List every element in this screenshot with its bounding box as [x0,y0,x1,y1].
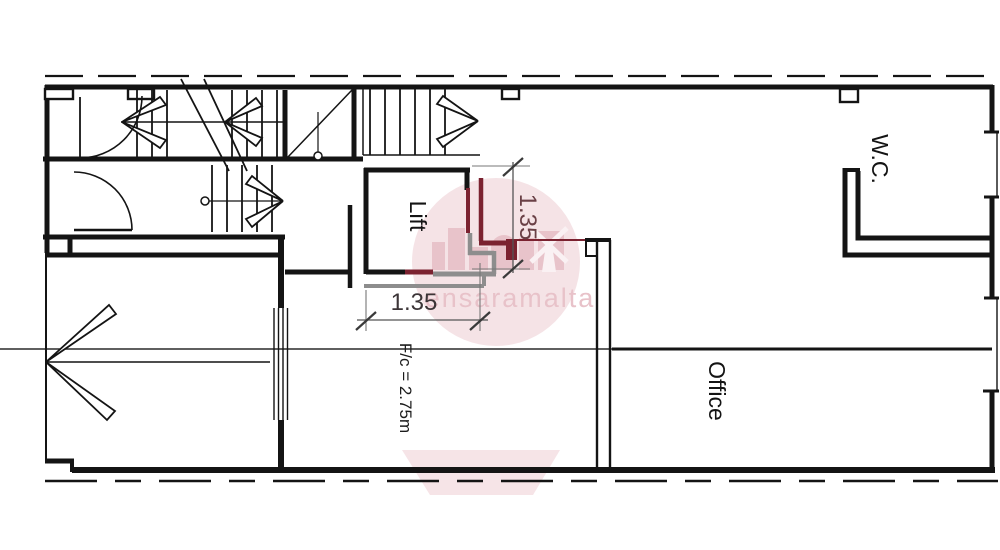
front-room [45,237,288,472]
wc-label: W.C. [867,134,893,184]
floor-plan-canvas: ensaramalta [0,0,1000,550]
ceiling-height-label: F/c = 2.75m [396,343,415,433]
office-room [585,240,992,470]
stair-treads-winders [212,165,272,232]
pilaster-topleft [45,89,73,99]
pilaster-1 [128,89,154,99]
newel-post-lower [201,197,209,205]
landing-diagonal [287,90,352,158]
dim-h-value: 1.35 [391,289,438,316]
lift-label: Lift [405,201,431,232]
wc-room [843,168,992,255]
stair-arrow-right-flight [437,96,478,147]
middle-room-walls [285,205,352,288]
door-swing-lower [74,172,132,230]
stair-treads-right-flight [370,89,445,155]
office-label: Office [704,361,730,421]
floor-plan-drawing: ensaramalta [0,0,1000,550]
dim-v-value: 1.35 [514,194,541,241]
aperture-lines [274,308,288,420]
red-jamb-block [506,239,517,260]
office-wall-notch [586,242,597,256]
pilaster-3 [840,89,858,102]
pilaster-2 [502,89,519,99]
newel-post-upper [314,152,322,160]
